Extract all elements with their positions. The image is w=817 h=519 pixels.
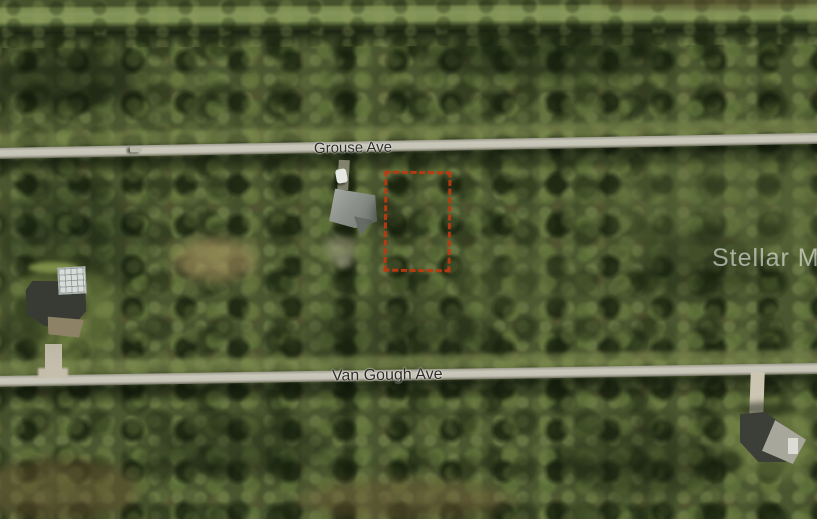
bare-ground-patch (336, 256, 352, 268)
pool-cage-screen (57, 266, 86, 294)
light-scrub-area (455, 250, 585, 310)
patio-slab (788, 438, 798, 454)
road-label-grouse-ave: Grouse Ave (314, 139, 392, 157)
brown-scrub-patch (172, 238, 257, 282)
bush (718, 450, 742, 472)
parcel-boundary-outline (383, 171, 451, 273)
driveway-apron (38, 368, 68, 378)
white-vehicle (335, 168, 348, 184)
stellar-mls-watermark: Stellar MLS (712, 244, 817, 273)
tree-cluster-shadow (560, 428, 720, 498)
brown-scrub-patch (300, 478, 510, 519)
tree-cluster-shadow (150, 418, 330, 478)
vehicle-on-road (130, 146, 142, 152)
tree-cluster-shadow (420, 36, 680, 80)
road-label-van-gough-ave: Van Gough Ave (332, 366, 443, 386)
aerial-map-image: Grouse Ave Van Gough Ave Stellar MLS (0, 0, 817, 519)
